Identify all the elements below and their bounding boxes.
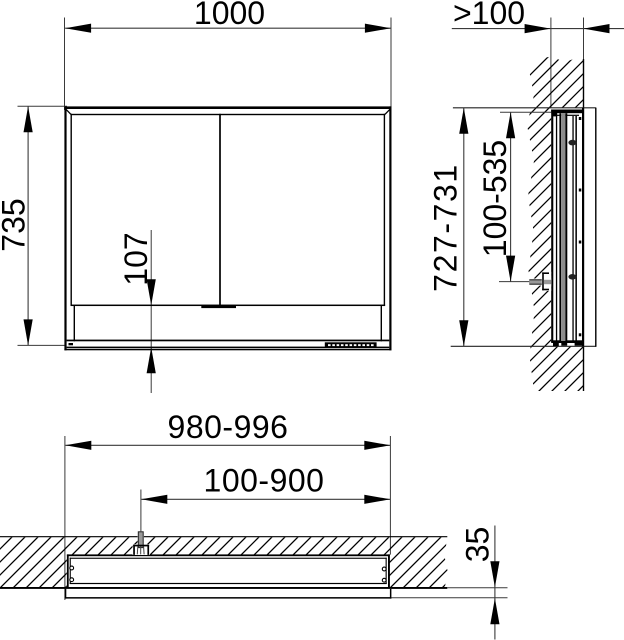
svg-text:980-996: 980-996 — [168, 409, 289, 445]
svg-text:107: 107 — [118, 232, 154, 285]
svg-text:>100: >100 — [453, 0, 525, 31]
svg-text:100-900: 100-900 — [204, 462, 325, 498]
svg-text:727-731: 727-731 — [427, 163, 463, 292]
svg-text:735: 735 — [0, 198, 32, 251]
svg-text:100-535: 100-535 — [477, 140, 513, 257]
svg-text:35: 35 — [460, 527, 496, 563]
svg-text:1000: 1000 — [194, 0, 265, 31]
